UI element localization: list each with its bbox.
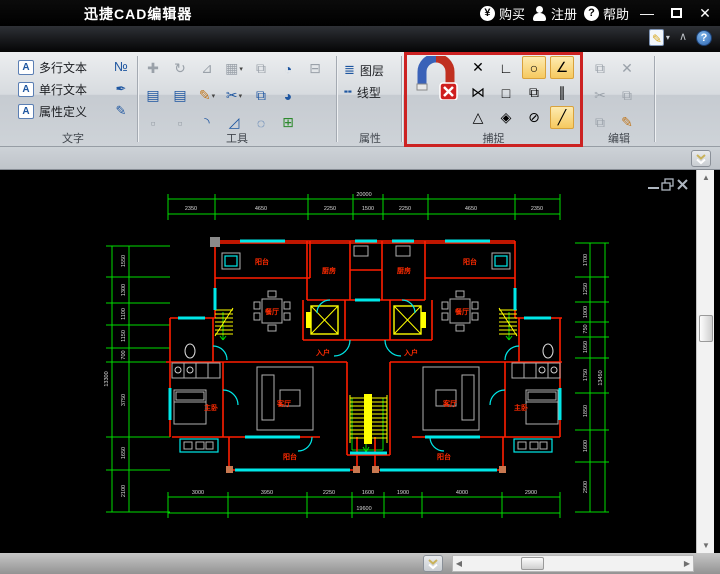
svg-text:阳台: 阳台 xyxy=(437,452,451,461)
restore-icon[interactable]: ◕ xyxy=(276,84,300,107)
singleline-text-button[interactable]: A 单行文本 xyxy=(18,79,87,99)
svg-text:3750: 3750 xyxy=(121,394,127,406)
multiline-text-icon: A xyxy=(18,60,34,75)
svg-text:1750: 1750 xyxy=(583,369,589,381)
snap-nearest-icon[interactable]: ╱ xyxy=(550,106,574,129)
group-separator xyxy=(401,56,402,142)
svg-text:1700: 1700 xyxy=(583,254,589,266)
svg-text:1150: 1150 xyxy=(121,330,127,342)
svg-text:19600: 19600 xyxy=(356,506,371,512)
svg-text:4000: 4000 xyxy=(456,490,468,496)
app-title: 迅捷CAD编辑器 xyxy=(84,4,192,24)
group-separator xyxy=(654,56,655,142)
svg-text:餐厅: 餐厅 xyxy=(264,307,279,316)
vertical-scroll-thumb[interactable] xyxy=(699,315,713,342)
svg-text:入户: 入户 xyxy=(315,348,330,357)
svg-text:2250: 2250 xyxy=(399,206,411,212)
question-icon: ? xyxy=(584,6,599,21)
add-block-icon[interactable]: ⊞ xyxy=(276,111,300,134)
snap-center-icon[interactable]: ○ xyxy=(522,56,546,79)
expand-statusbar-button[interactable] xyxy=(423,555,443,572)
snap-intersection-icon[interactable]: ✕ xyxy=(466,56,490,79)
drawing-edit-button[interactable]: ✎ ▾ xyxy=(649,29,670,46)
linetype-button[interactable]: ╍ 线型 xyxy=(344,82,381,102)
paste-icon: ⧉ xyxy=(588,57,612,80)
floor-plan-drawing: 阳台阳台厨房厨房餐厅餐厅入户入户主卧主卧客厅客厅阳台阳台235046502250… xyxy=(0,170,720,553)
user-icon xyxy=(532,6,547,21)
svg-text:入户: 入户 xyxy=(403,348,418,357)
minimize-button[interactable]: — xyxy=(636,0,658,26)
scroll-left-arrow[interactable]: ◀ xyxy=(453,556,465,571)
format-painter-icon[interactable]: ✎ xyxy=(615,111,639,134)
multiline-text-button[interactable]: A 多行文本 xyxy=(18,57,87,77)
new-view-icon[interactable]: ▤ xyxy=(141,84,165,107)
svg-text:1300: 1300 xyxy=(121,284,127,296)
ribbon-substrip xyxy=(0,147,720,170)
dropdown-arrow-icon[interactable]: ▾ xyxy=(239,65,243,73)
quick-access-bar: ✎ ▾ ∧ ? xyxy=(0,26,720,52)
group-separator xyxy=(336,56,337,142)
attribute-define-button[interactable]: A 属性定义 xyxy=(18,101,87,121)
svg-text:1050: 1050 xyxy=(583,341,589,353)
svg-text:1600: 1600 xyxy=(583,440,589,452)
svg-text:厨房: 厨房 xyxy=(322,266,336,275)
snap-insert-icon[interactable]: ⧉ xyxy=(522,81,546,104)
redo-history-icon[interactable]: ◔ xyxy=(276,57,300,80)
dropdown-arrow-icon[interactable]: ▾ xyxy=(212,92,216,100)
svg-text:13450: 13450 xyxy=(598,370,604,385)
collapse-panel-button[interactable] xyxy=(691,150,711,167)
svg-text:1650: 1650 xyxy=(121,447,127,459)
singleline-text-icon: A xyxy=(18,82,34,97)
svg-text:700: 700 xyxy=(121,350,127,359)
svg-text:餐厅: 餐厅 xyxy=(454,307,469,316)
svg-text:750: 750 xyxy=(583,324,589,333)
svg-text:2350: 2350 xyxy=(531,206,543,212)
close-button[interactable]: ✕ xyxy=(694,0,716,26)
layers-icon: ≣ xyxy=(344,62,355,78)
svg-text:主卧: 主卧 xyxy=(204,403,218,412)
text-group-label: 文字 xyxy=(10,130,136,146)
svg-text:客厅: 客厅 xyxy=(442,399,457,408)
document-pencil-icon: ✎ xyxy=(649,29,664,46)
svg-text:厨房: 厨房 xyxy=(397,266,411,275)
svg-text:阳台: 阳台 xyxy=(283,452,297,461)
svg-text:1850: 1850 xyxy=(583,405,589,417)
move-icon: ✚ xyxy=(141,57,165,80)
snap-angle-icon[interactable]: ∠ xyxy=(550,56,574,79)
scroll-up-arrow[interactable]: ▲ xyxy=(697,170,715,185)
svg-text:2250: 2250 xyxy=(323,490,335,496)
cad-editor-window: { "window": { "title": "迅捷CAD编辑器", "buy_… xyxy=(0,0,720,574)
group-icon[interactable]: ◌ xyxy=(249,111,273,134)
horizontal-scroll-thumb[interactable] xyxy=(521,557,544,570)
duplicate-icon[interactable]: ⧉ xyxy=(249,84,273,107)
dropdown-arrow-icon: ▾ xyxy=(666,33,670,42)
svg-text:13300: 13300 xyxy=(104,371,110,386)
draw-pen-icon[interactable]: ✎▾ xyxy=(195,84,219,107)
ribbon: A 多行文本 A 单行文本 A 属性定义 文字 工具 ≣ 图层 ╍ 线型 属性 xyxy=(0,52,720,147)
snap-node-icon[interactable]: △ xyxy=(466,106,490,129)
svg-text:1900: 1900 xyxy=(397,490,409,496)
rotate-icon: ↻ xyxy=(168,57,192,80)
snap-tangent-icon[interactable]: ⊘ xyxy=(522,106,546,129)
svg-text:4650: 4650 xyxy=(255,206,267,212)
vertical-scrollbar[interactable]: ▲ ▼ xyxy=(696,170,714,553)
horizontal-scrollbar[interactable]: ◀ ▶ xyxy=(452,555,694,572)
buy-button[interactable]: ¥ 购买 xyxy=(480,4,525,23)
svg-text:20000: 20000 xyxy=(356,192,371,198)
snap-quadrant-icon[interactable]: ◈ xyxy=(494,106,518,129)
svg-text:2900: 2900 xyxy=(525,490,537,496)
help-button[interactable]: ? 帮助 xyxy=(584,4,629,23)
svg-text:4650: 4650 xyxy=(465,206,477,212)
svg-text:主卧: 主卧 xyxy=(514,403,528,412)
svg-text:1500: 1500 xyxy=(362,206,374,212)
drawing-canvas[interactable]: 阳台阳台厨房厨房餐厅餐厅入户入户主卧主卧客厅客厅阳台阳台235046502250… xyxy=(0,170,720,553)
maximize-button[interactable] xyxy=(665,0,687,26)
svg-text:1600: 1600 xyxy=(362,490,374,496)
array-icon: ▦▾ xyxy=(222,57,246,80)
scroll-down-arrow[interactable]: ▼ xyxy=(697,538,715,553)
svg-text:客厅: 客厅 xyxy=(276,399,291,408)
edit-text-icon[interactable]: ✎ xyxy=(112,102,130,120)
scroll-right-arrow[interactable]: ▶ xyxy=(681,556,693,571)
group-separator xyxy=(137,56,138,142)
svg-text:2350: 2350 xyxy=(185,206,197,212)
collapse-ribbon-icon[interactable]: ∧ xyxy=(679,32,687,43)
snap-perpendicular-icon[interactable]: ∟ xyxy=(494,56,518,79)
title-bar: 迅捷CAD编辑器 ¥ 购买 注册 ? 帮助 — ✕ xyxy=(0,0,720,26)
stretch-icon: ▫ xyxy=(168,111,192,134)
cut-icon: ✂ xyxy=(588,84,612,107)
linetype-icon: ╍ xyxy=(344,84,352,100)
new-layout-icon[interactable]: ▤ xyxy=(168,84,192,107)
delete-icon: ✕ xyxy=(615,57,639,80)
help-circle-icon[interactable]: ? xyxy=(696,30,712,46)
numbering-icon[interactable]: № xyxy=(112,58,130,76)
text-style-icon[interactable]: ✒ xyxy=(112,80,130,98)
svg-text:2100: 2100 xyxy=(121,485,127,497)
snap-midpoint-icon[interactable]: ⋈ xyxy=(466,81,490,104)
trim-icon[interactable]: ✂▾ xyxy=(222,84,246,107)
svg-text:阳台: 阳台 xyxy=(255,257,269,266)
svg-text:1250: 1250 xyxy=(583,283,589,295)
yuan-icon: ¥ xyxy=(480,6,495,21)
mirror-icon: ⊿ xyxy=(195,57,219,80)
status-bar: ◀ ▶ xyxy=(0,553,720,574)
svg-text:1000: 1000 xyxy=(583,306,589,318)
collapse-block-icon: ⊟ xyxy=(303,57,327,80)
attribute-define-icon: A xyxy=(18,104,34,119)
scale-icon: ▫ xyxy=(141,111,165,134)
svg-text:1100: 1100 xyxy=(121,308,127,320)
props-group-label: 属性 xyxy=(340,130,400,146)
fillet-icon[interactable]: ◝ xyxy=(195,111,219,134)
layers-button[interactable]: ≣ 图层 xyxy=(344,60,384,80)
svg-text:2500: 2500 xyxy=(583,481,589,493)
svg-text:2250: 2250 xyxy=(324,206,336,212)
snap-parallel-icon[interactable]: ∥ xyxy=(550,81,574,104)
svg-text:1550: 1550 xyxy=(121,255,127,267)
svg-text:3000: 3000 xyxy=(192,490,204,496)
copy-base-icon: ⧉ xyxy=(588,111,612,134)
svg-text:3950: 3950 xyxy=(261,490,273,496)
register-button[interactable]: 注册 xyxy=(532,4,577,23)
snap-endpoint-icon[interactable]: □ xyxy=(494,81,518,104)
copy-objects-icon: ⧉ xyxy=(249,57,273,80)
copy-icon: ⧉ xyxy=(615,84,639,107)
svg-text:阳台: 阳台 xyxy=(463,257,477,266)
dropdown-arrow-icon[interactable]: ▾ xyxy=(239,92,243,100)
chamfer-icon[interactable]: ◿ xyxy=(222,111,246,134)
